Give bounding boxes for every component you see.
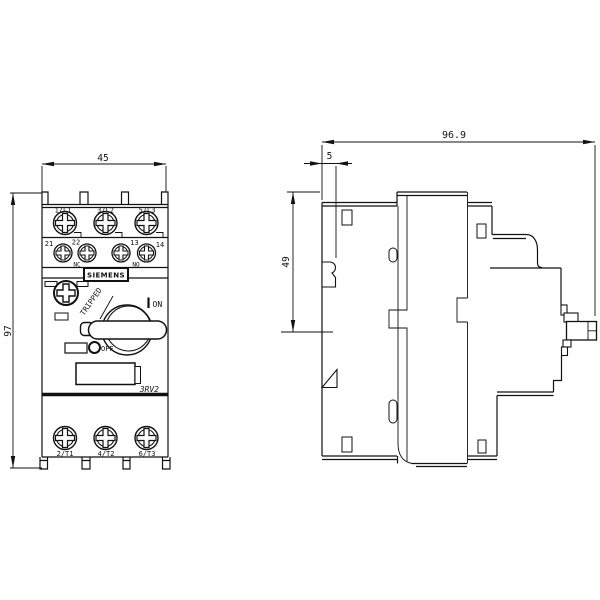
load-terminals: 2/T1 4/T2 6/T3 xyxy=(54,427,159,459)
aux-label-13: 13 xyxy=(130,239,138,247)
off-label: OFF xyxy=(101,345,114,353)
test-button xyxy=(65,343,87,353)
aux-screw-icon xyxy=(78,244,96,262)
knob-side-profile xyxy=(561,305,597,356)
arrowhead xyxy=(154,162,166,166)
marker-window xyxy=(45,282,57,287)
section-joint xyxy=(457,192,468,464)
side-offset-dim-label: 5 xyxy=(327,151,333,162)
aux-label-21: 21 xyxy=(45,240,53,248)
terminal-screw-icon xyxy=(54,427,77,450)
aux-screw-icon xyxy=(54,244,72,262)
side-height-dim-label: 49 xyxy=(281,256,292,268)
front-height-dimension: 97 xyxy=(3,193,42,468)
side-outline xyxy=(322,192,562,467)
arrowhead xyxy=(291,320,295,332)
front-width-dimension: 45 xyxy=(42,153,166,192)
side-depth-dim-label: 96.9 xyxy=(442,130,466,141)
on-label: ON xyxy=(153,300,163,309)
arrowhead xyxy=(11,456,15,468)
arrowhead xyxy=(336,161,348,165)
terminal-screw-icon xyxy=(54,212,77,235)
handle-blade xyxy=(89,321,167,339)
line-terminals: 1/L1 3/L2 5/L3 xyxy=(54,207,164,238)
front-height-dim-label: 97 xyxy=(3,325,14,336)
terminal-screw-icon xyxy=(94,212,117,235)
vent-slot xyxy=(477,224,486,238)
front-view: 45 97 1/L1 3/L2 5/L3 xyxy=(3,153,170,469)
terminal-screw-icon xyxy=(135,212,158,235)
din-claw-lower xyxy=(322,370,337,388)
terminal-label-4T2: 4/T2 xyxy=(98,450,115,458)
brand-label: SIEMENS xyxy=(87,272,125,280)
reset-window xyxy=(55,313,68,320)
side-offset-dimension: 5 xyxy=(304,151,352,258)
arrowhead xyxy=(42,162,54,166)
marker-window xyxy=(77,282,88,287)
vent-slot xyxy=(389,400,397,423)
side-view: 96.9 5 49 xyxy=(281,130,597,467)
vent-slot xyxy=(478,440,486,453)
din-claw-upper xyxy=(322,262,336,287)
vent-slot xyxy=(342,437,352,452)
side-depth-dimension: 96.9 xyxy=(322,130,595,316)
control-panel: TRIPPED ON OFF 3RV2 xyxy=(42,281,168,395)
arrowhead xyxy=(322,140,334,144)
aux-label-14: 14 xyxy=(156,241,164,249)
terminal-screw-icon xyxy=(94,427,117,450)
bottom-feet xyxy=(40,457,170,469)
tripped-label: TRIPPED xyxy=(78,286,104,317)
arrowhead xyxy=(11,193,15,205)
aux-contact-no: NO xyxy=(132,262,140,269)
adjustment-dial-icon xyxy=(54,281,78,305)
terminal-screw-icon xyxy=(135,427,158,450)
vent-slot xyxy=(389,248,397,262)
arrowhead xyxy=(583,140,595,144)
arrowhead xyxy=(310,161,322,165)
terminal-label-2T1: 2/T1 xyxy=(57,450,74,458)
arrowhead xyxy=(291,192,295,204)
label-window-tab xyxy=(135,367,141,384)
top-terminal-tabs xyxy=(42,192,168,204)
section-joint xyxy=(398,206,412,464)
series-label: 3RV2 xyxy=(139,385,159,394)
dimensional-drawing: 45 97 1/L1 3/L2 5/L3 xyxy=(0,0,600,600)
vent-slot xyxy=(342,210,352,225)
aux-contact-nc: NC xyxy=(73,262,81,269)
label-window xyxy=(76,363,135,385)
aux-screw-icon xyxy=(112,244,130,262)
front-width-dim-label: 45 xyxy=(97,153,108,164)
off-position-mark xyxy=(89,342,100,353)
aux-screw-icon xyxy=(138,244,156,262)
aux-label-22: 22 xyxy=(72,239,80,247)
terminal-label-6T3: 6/T3 xyxy=(139,450,156,458)
